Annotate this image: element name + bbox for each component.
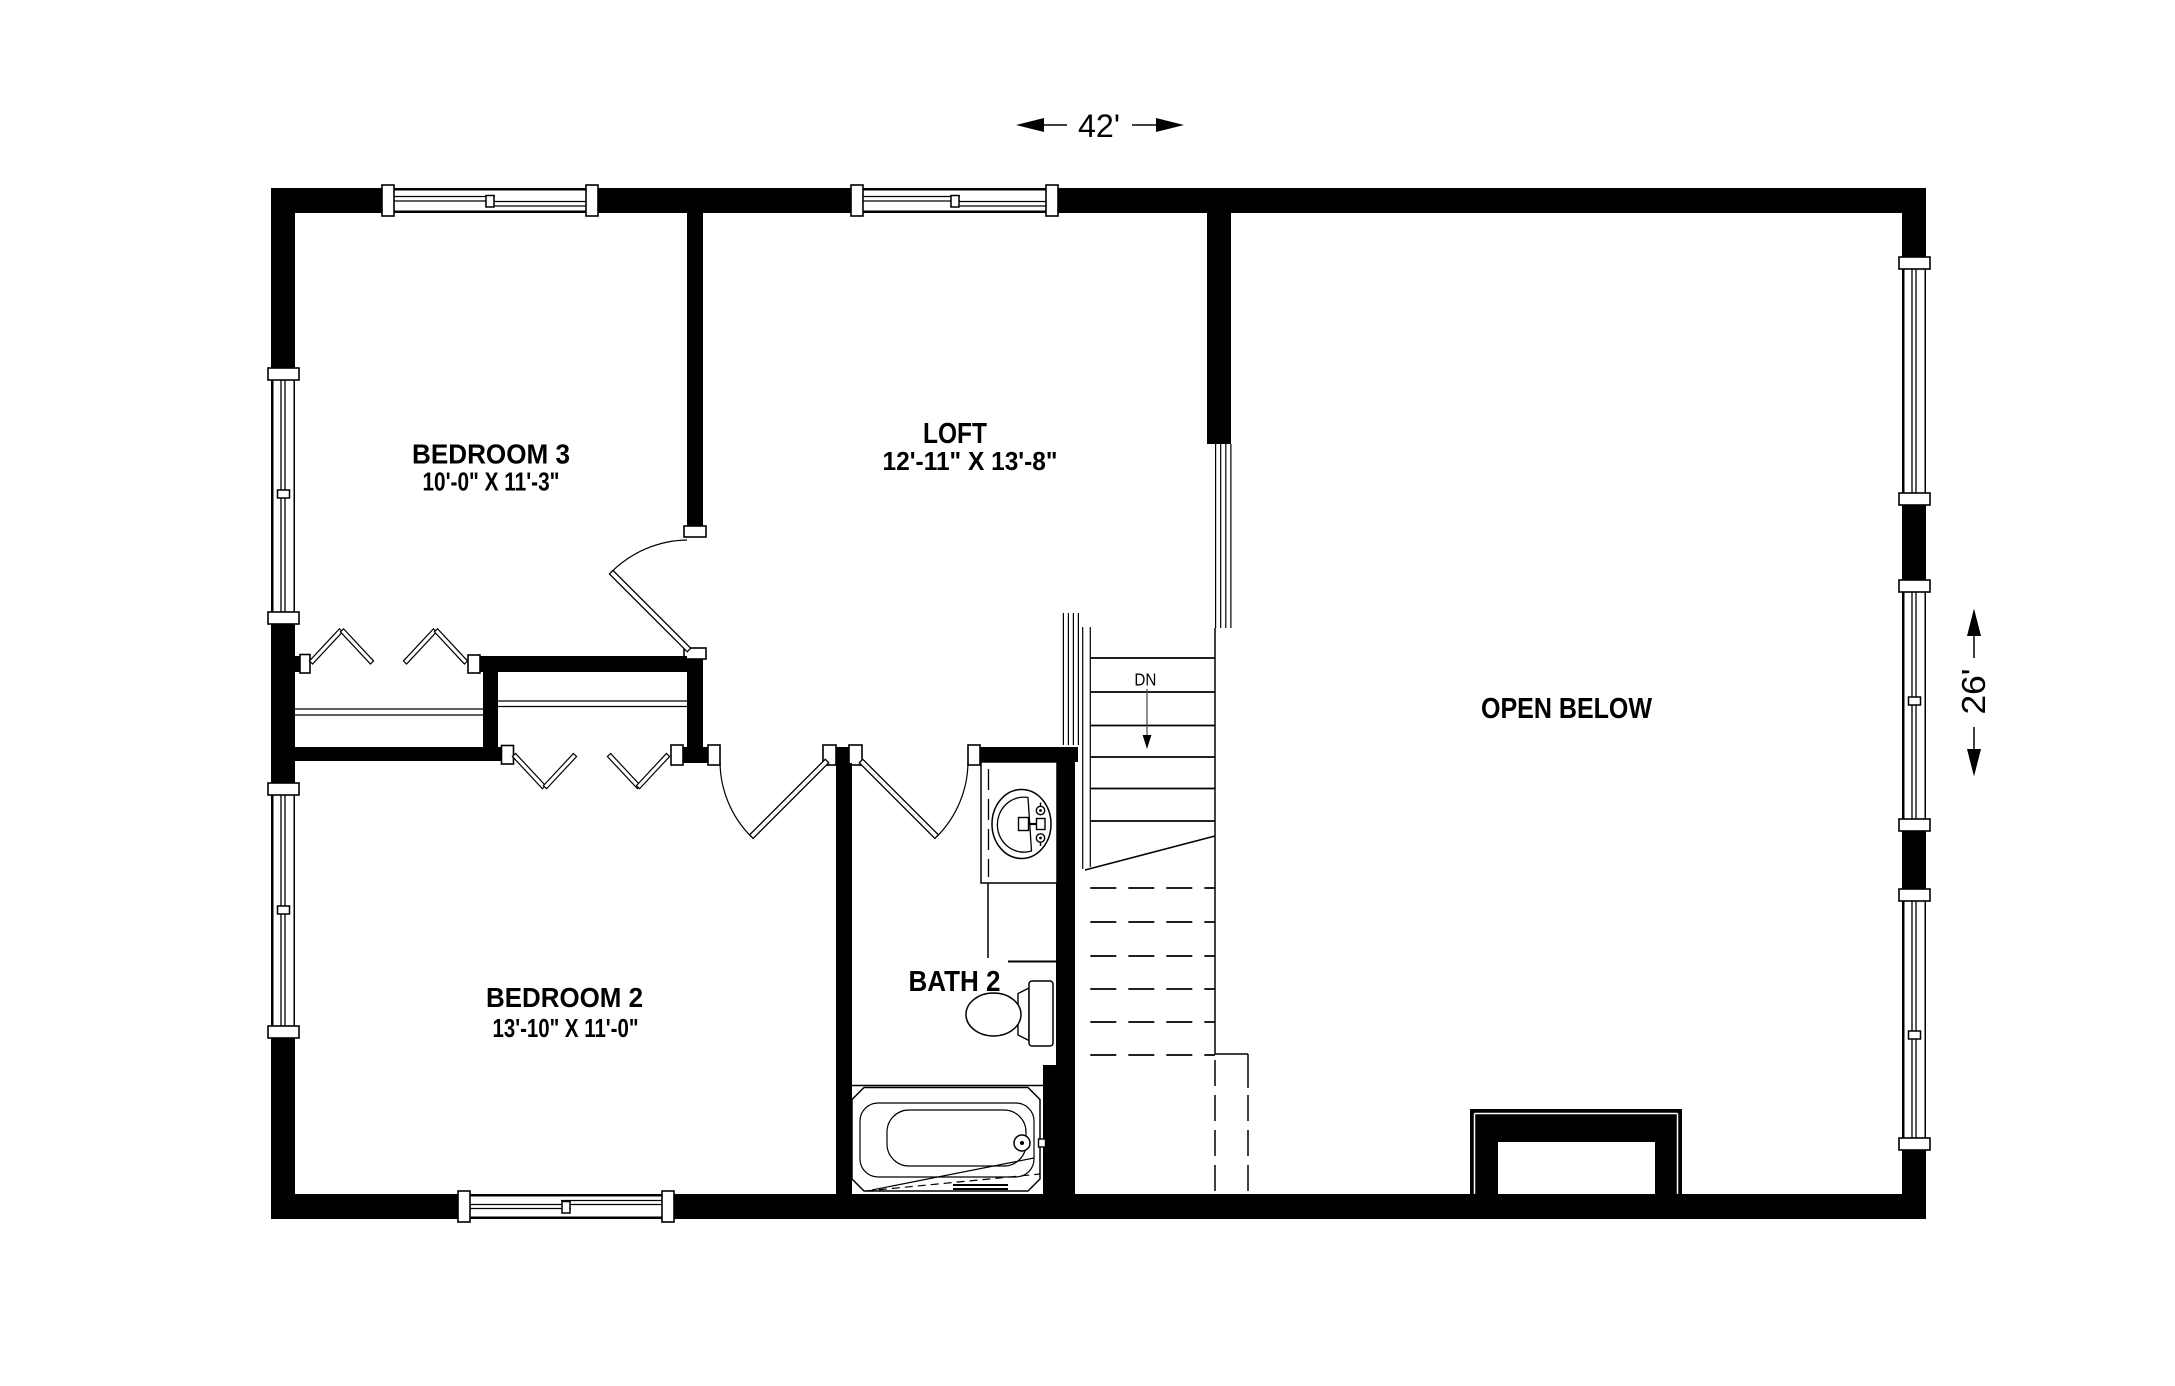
- svg-text:DN: DN: [1134, 669, 1156, 689]
- svg-text:10'-0" X 11'-3": 10'-0" X 11'-3": [423, 469, 560, 497]
- svg-text:26': 26': [1955, 669, 1992, 715]
- svg-text:BATH 2: BATH 2: [909, 966, 1001, 998]
- svg-text:42': 42': [1078, 108, 1120, 144]
- svg-text:13'-10" X 11'-0": 13'-10" X 11'-0": [493, 1015, 639, 1043]
- svg-text:12'-11" X 13'-8": 12'-11" X 13'-8": [883, 448, 1058, 476]
- svg-text:BEDROOM 3: BEDROOM 3: [412, 439, 570, 470]
- svg-text:LOFT: LOFT: [923, 418, 987, 450]
- svg-text:BEDROOM 2: BEDROOM 2: [486, 982, 643, 1013]
- svg-text:OPEN BELOW: OPEN BELOW: [1481, 693, 1653, 725]
